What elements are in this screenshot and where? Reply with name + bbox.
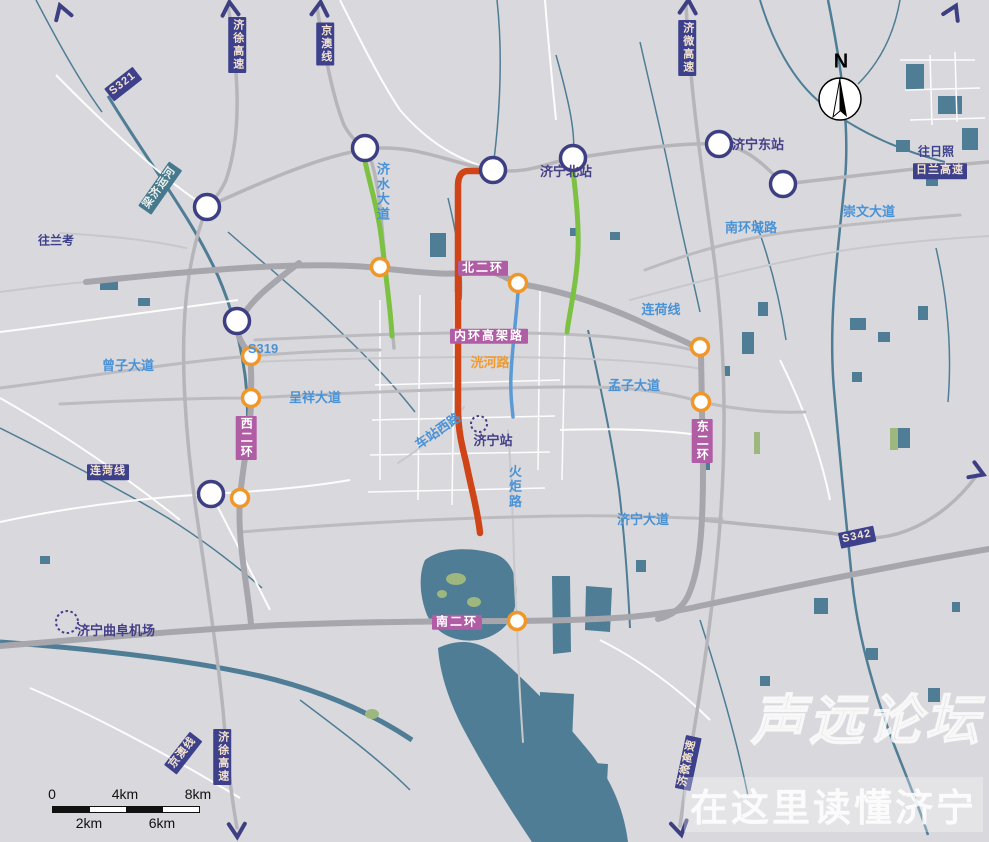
- jining-road-map: S321济徐高速京澳线济微高速日兰高速S342连菏线济徐高速京澳线济微高速北二环…: [0, 0, 989, 842]
- junction-circle: [225, 309, 250, 334]
- junction-circle: [481, 158, 506, 183]
- interchange-circle: [372, 259, 389, 276]
- scale-label-0: 0: [48, 786, 56, 802]
- interchange-circle: [243, 390, 260, 407]
- interchange-circle: [232, 490, 249, 507]
- basemap-svg: [0, 0, 989, 842]
- scale-label-6km: 6km: [149, 815, 175, 831]
- junction-circle: [195, 195, 220, 220]
- interchange-circle: [509, 613, 526, 630]
- scale-label-2km: 2km: [76, 815, 102, 831]
- scale-label-8km: 8km: [185, 786, 211, 802]
- junction-circle: [707, 132, 732, 157]
- interchange-circle: [692, 339, 709, 356]
- interchange-circle: [693, 394, 710, 411]
- junction-circle: [353, 136, 378, 161]
- junction-circle: [771, 172, 796, 197]
- interchange-circle: [243, 348, 260, 365]
- junction-circle: [199, 482, 224, 507]
- scale-label-4km: 4km: [112, 786, 138, 802]
- interchange-circle: [510, 275, 527, 292]
- compass-north-label: N: [834, 51, 848, 74]
- scale-bar-segments: [52, 806, 200, 813]
- scale-bar: 0 4km 8km 2km 6km: [40, 782, 220, 832]
- compass-rose: [819, 78, 861, 120]
- junction-circle: [561, 146, 586, 171]
